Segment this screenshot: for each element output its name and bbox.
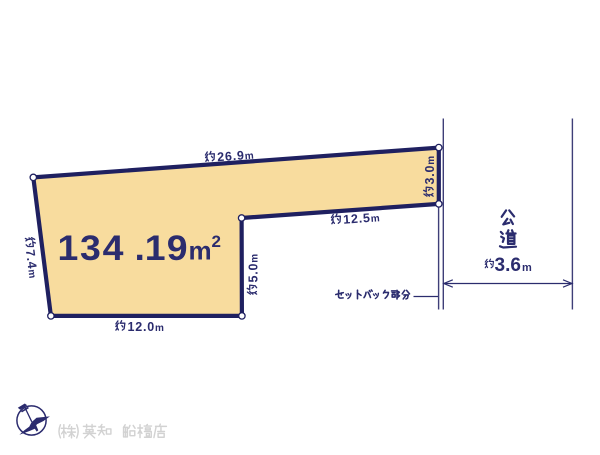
svg-text:3.6: 3.6 bbox=[495, 255, 521, 276]
svg-text:m: m bbox=[189, 236, 212, 266]
svg-text:.: . bbox=[135, 228, 145, 268]
svg-text:2: 2 bbox=[212, 232, 221, 251]
svg-text:19: 19 bbox=[145, 228, 189, 268]
svg-text:12.5m: 12.5m bbox=[343, 210, 380, 227]
svg-text:m: m bbox=[522, 262, 532, 274]
svg-text:12.0m: 12.0m bbox=[128, 320, 165, 334]
svg-text:5.0m: 5.0m bbox=[247, 254, 261, 283]
svg-text:3.0m: 3.0m bbox=[423, 156, 437, 185]
svg-text:134: 134 bbox=[58, 228, 126, 268]
svg-text:7.4m: 7.4m bbox=[23, 249, 40, 279]
svg-text:26.9m: 26.9m bbox=[217, 148, 254, 165]
